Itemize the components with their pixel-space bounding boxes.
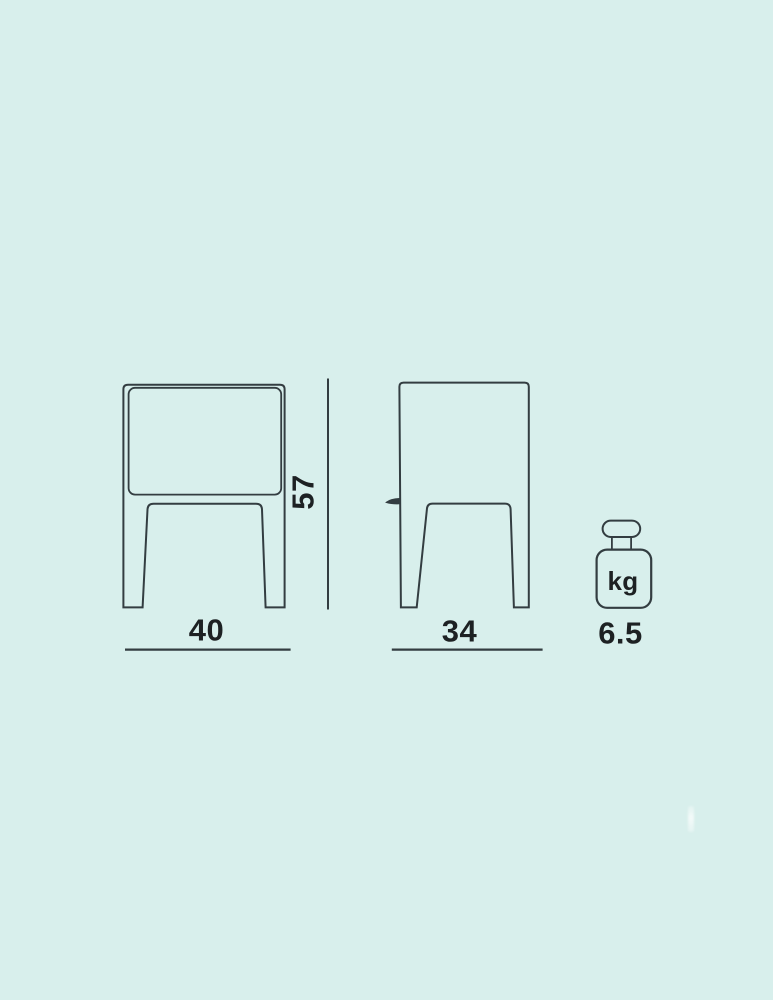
weight-value-label: 6.5 (598, 618, 643, 649)
dimension-drawing-svg (0, 0, 773, 1000)
width-value-label: 40 (189, 615, 224, 646)
weight-unit-label: kg (608, 568, 639, 594)
height-value-label: 57 (288, 474, 319, 509)
depth-value-label: 34 (442, 616, 477, 647)
faint-artifact-line (688, 806, 694, 832)
product-dimensions-diagram: 57 40 34 6.5 kg (0, 0, 773, 1000)
weight-knob (603, 521, 641, 537)
side-view-outline (399, 383, 528, 608)
front-view-outline (123, 385, 284, 608)
side-view (387, 383, 529, 608)
front-view-drawer (129, 388, 282, 495)
front-view (123, 385, 284, 608)
side-view-drawer-lip-icon (387, 499, 400, 504)
